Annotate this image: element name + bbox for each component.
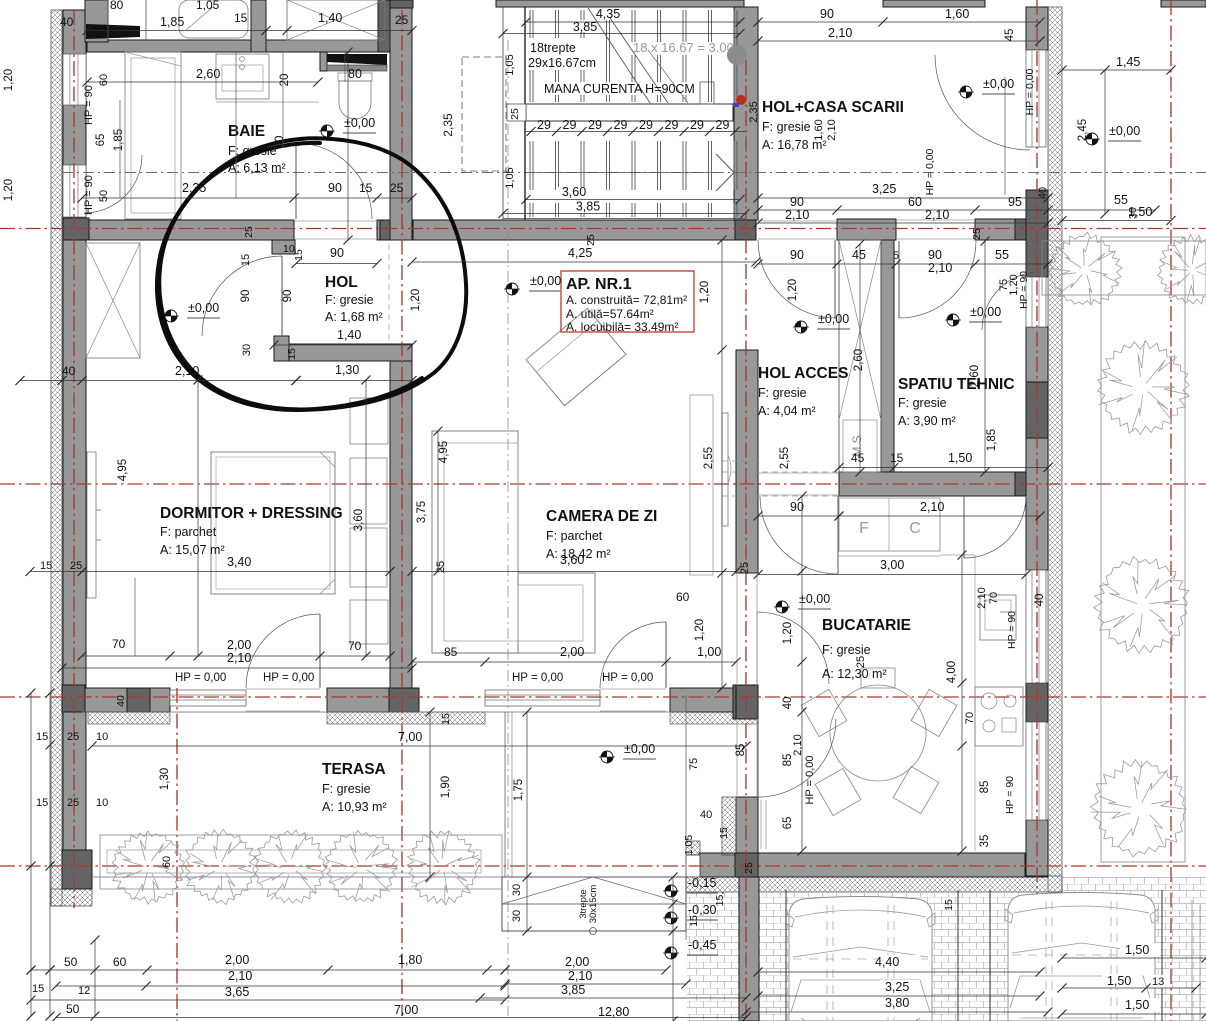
svg-text:40: 40: [115, 695, 127, 707]
svg-text:30x15cm: 30x15cm: [588, 885, 599, 924]
svg-text:2,10: 2,10: [828, 26, 852, 40]
svg-text:15: 15: [240, 254, 252, 266]
svg-text:60: 60: [676, 590, 690, 604]
svg-text:29: 29: [614, 118, 628, 132]
svg-text:-0,45: -0,45: [688, 938, 717, 952]
svg-text:1,85: 1,85: [986, 429, 998, 451]
svg-text:1,45: 1,45: [1116, 55, 1140, 69]
svg-text:2,35: 2,35: [441, 113, 455, 137]
svg-text:95: 95: [1008, 195, 1022, 209]
svg-text:70: 70: [988, 592, 1000, 604]
svg-text:HOL ACCES: HOL ACCES: [758, 365, 848, 382]
svg-text:29: 29: [639, 118, 653, 132]
svg-text:25: 25: [739, 562, 751, 574]
svg-text:25: 25: [971, 228, 983, 240]
svg-text:90: 90: [790, 195, 804, 209]
svg-text:30: 30: [1127, 207, 1139, 219]
svg-text:15: 15: [234, 11, 248, 25]
svg-text:±0,00: ±0,00: [799, 592, 830, 606]
svg-text:60: 60: [98, 74, 110, 86]
svg-text:90: 90: [282, 290, 294, 303]
svg-text:A. locuibilă= 33.49m²: A. locuibilă= 33.49m²: [566, 320, 678, 334]
svg-text:29: 29: [588, 118, 602, 132]
svg-text:±0,00: ±0,00: [1109, 124, 1140, 138]
svg-text:1,50: 1,50: [948, 451, 972, 465]
svg-text:-0,30: -0,30: [688, 903, 717, 917]
svg-text:15: 15: [943, 899, 955, 911]
svg-text:HP = 90: HP = 90: [1018, 271, 1030, 309]
svg-text:15: 15: [688, 915, 700, 927]
svg-text:A. utilă=57.64m²: A. utilă=57.64m²: [566, 307, 654, 321]
svg-text:7,00: 7,00: [398, 730, 422, 744]
svg-text:2,10: 2,10: [920, 500, 944, 514]
svg-text:7,00: 7,00: [394, 1003, 418, 1017]
svg-text:29x16.67cm: 29x16.67cm: [528, 56, 596, 70]
svg-text:13: 13: [1152, 976, 1164, 988]
svg-text:1,20: 1,20: [782, 622, 794, 644]
svg-text:HP = 0,00: HP = 0,00: [263, 672, 314, 684]
svg-text:40: 40: [60, 15, 74, 29]
svg-text:45: 45: [852, 248, 866, 262]
svg-text:15: 15: [359, 181, 373, 195]
svg-text:4,95: 4,95: [117, 459, 129, 481]
svg-text:3,60: 3,60: [562, 185, 586, 199]
svg-text:3,65: 3,65: [225, 985, 249, 999]
svg-text:40: 40: [1037, 187, 1049, 199]
svg-text:60: 60: [908, 195, 922, 209]
svg-text:HOL: HOL: [325, 274, 358, 291]
svg-text:3,60: 3,60: [353, 509, 365, 531]
svg-text:1,90: 1,90: [440, 776, 452, 798]
svg-text:30: 30: [511, 910, 523, 922]
svg-text:45: 45: [851, 451, 865, 465]
svg-text:HP = 0,00: HP = 0,00: [1024, 68, 1036, 115]
svg-text:F: gresie: F: gresie: [898, 396, 947, 410]
svg-text:18 x 16.67 = 3.00: 18 x 16.67 = 3.00: [633, 40, 734, 55]
svg-text:3,40: 3,40: [227, 555, 251, 569]
svg-text:CAMERA DE ZI: CAMERA DE ZI: [546, 508, 657, 525]
svg-text:3,85: 3,85: [573, 20, 597, 34]
svg-text:F: gresie: F: gresie: [822, 643, 871, 657]
svg-text:1,00: 1,00: [697, 645, 721, 659]
svg-text:2,60: 2,60: [196, 67, 220, 81]
svg-text:±0,00: ±0,00: [624, 742, 655, 756]
svg-text:29: 29: [665, 118, 679, 132]
svg-text:HP = 90: HP = 90: [1004, 776, 1016, 814]
svg-text:HP = 0,00: HP = 0,00: [175, 672, 226, 684]
svg-text:40: 40: [782, 697, 794, 710]
svg-text:TERASA: TERASA: [322, 761, 386, 778]
svg-text:90: 90: [240, 290, 252, 303]
svg-text:1,85: 1,85: [160, 15, 184, 29]
svg-text:A: 1,68 m²: A: 1,68 m²: [325, 310, 383, 324]
svg-text:60: 60: [161, 856, 173, 868]
svg-text:40: 40: [700, 809, 712, 821]
svg-text:12: 12: [78, 985, 90, 997]
svg-text:90: 90: [328, 181, 342, 195]
svg-text:1,20: 1,20: [699, 281, 711, 303]
svg-text:25: 25: [743, 862, 755, 874]
svg-text:70: 70: [348, 639, 362, 653]
svg-text:4,25: 4,25: [568, 246, 592, 260]
svg-text:35: 35: [979, 835, 991, 848]
svg-text:90: 90: [928, 248, 942, 262]
svg-text:85: 85: [444, 645, 458, 659]
svg-text:15: 15: [440, 713, 452, 725]
svg-text:25: 25: [509, 108, 521, 120]
svg-text:40: 40: [62, 364, 76, 378]
svg-text:2,45: 2,45: [1077, 119, 1089, 141]
svg-text:2,00: 2,00: [565, 955, 589, 969]
svg-text:29: 29: [563, 118, 577, 132]
svg-text:85: 85: [979, 781, 991, 794]
svg-text:25: 25: [390, 181, 404, 195]
svg-text:F: gresie: F: gresie: [758, 386, 807, 400]
svg-text:5: 5: [893, 250, 899, 262]
svg-text:1,20: 1,20: [787, 279, 799, 301]
svg-text:±0,00: ±0,00: [530, 274, 561, 288]
svg-text:55: 55: [1114, 193, 1128, 207]
svg-text:15: 15: [36, 731, 48, 743]
svg-text:DORMITOR + DRESSING: DORMITOR + DRESSING: [160, 505, 343, 522]
svg-text:2,00: 2,00: [225, 953, 249, 967]
svg-text:1,60: 1,60: [945, 7, 969, 21]
svg-text:65: 65: [95, 134, 107, 147]
svg-text:15: 15: [890, 451, 904, 465]
svg-text:1,40: 1,40: [337, 328, 361, 342]
svg-text:1,50: 1,50: [1125, 998, 1149, 1012]
svg-text:85: 85: [735, 744, 747, 757]
svg-text:F: gresie: F: gresie: [762, 120, 811, 134]
svg-text:2,55: 2,55: [703, 447, 715, 469]
svg-text:25: 25: [855, 656, 867, 668]
svg-text:15: 15: [718, 827, 730, 839]
svg-text:-0,15: -0,15: [688, 876, 717, 890]
svg-text:20: 20: [279, 74, 291, 87]
svg-text:MANA CURENTA H=90CM: MANA CURENTA H=90CM: [544, 82, 695, 96]
svg-text:HP = 90: HP = 90: [83, 175, 95, 215]
svg-text:2,60: 2,60: [969, 365, 981, 387]
svg-text:30: 30: [241, 344, 253, 356]
svg-text:29: 29: [690, 118, 704, 132]
svg-text:1,40: 1,40: [318, 11, 342, 25]
svg-text:50: 50: [66, 1002, 80, 1016]
svg-text:1,50: 1,50: [1107, 974, 1131, 988]
svg-text:50: 50: [98, 190, 110, 202]
svg-text:4,95: 4,95: [438, 441, 450, 463]
svg-text:2,10: 2,10: [928, 261, 952, 275]
svg-text:BAIE: BAIE: [228, 123, 265, 140]
svg-text:C: C: [909, 520, 921, 537]
svg-text:15: 15: [36, 797, 48, 809]
svg-text:1,20: 1,20: [3, 179, 15, 201]
svg-text:1,85: 1,85: [113, 129, 125, 151]
svg-text:1,20: 1,20: [694, 619, 706, 641]
svg-text:60: 60: [113, 955, 127, 969]
svg-text:HP = 90: HP = 90: [1006, 611, 1018, 649]
svg-text:F: parchet: F: parchet: [160, 525, 217, 539]
svg-text:10: 10: [96, 731, 108, 743]
svg-text:±0,00: ±0,00: [344, 116, 375, 130]
svg-text:2,10: 2,10: [568, 969, 592, 983]
svg-text:4,35: 4,35: [596, 7, 620, 21]
svg-text:25: 25: [585, 234, 597, 246]
svg-text:HOL+CASA SCARII: HOL+CASA SCARII: [762, 99, 904, 116]
svg-text:1,60: 1,60: [813, 119, 825, 140]
svg-text:2,00: 2,00: [227, 638, 251, 652]
svg-text:2,10: 2,10: [175, 364, 199, 378]
svg-text:3,80: 3,80: [885, 996, 909, 1010]
svg-text:80: 80: [110, 0, 124, 12]
svg-text:18trepte: 18trepte: [530, 41, 576, 55]
svg-text:25: 25: [395, 13, 409, 27]
svg-text:A: 3,90 m²: A: 3,90 m²: [898, 414, 956, 428]
svg-text:BUCATARIE: BUCATARIE: [822, 617, 911, 634]
svg-text:2,60: 2,60: [853, 349, 865, 371]
svg-text:15: 15: [32, 983, 44, 995]
svg-text:40: 40: [1034, 594, 1046, 607]
svg-text:90: 90: [790, 248, 804, 262]
svg-text:1,80: 1,80: [398, 953, 422, 967]
svg-text:AP. NR.1: AP. NR.1: [566, 276, 632, 293]
svg-text:12,80: 12,80: [598, 1005, 629, 1019]
svg-text:29: 29: [716, 118, 730, 132]
svg-text:70: 70: [964, 712, 976, 724]
svg-text:1,75: 1,75: [513, 779, 525, 801]
svg-text:1,30: 1,30: [335, 363, 359, 377]
svg-text:25: 25: [67, 731, 79, 743]
svg-text:4,40: 4,40: [875, 955, 899, 969]
svg-text:A: 6,13 m²: A: 6,13 m²: [228, 161, 286, 175]
svg-text:F: F: [859, 520, 869, 537]
svg-text:SPATIU TEHNIC: SPATIU TEHNIC: [898, 376, 1015, 393]
svg-text:2,10: 2,10: [826, 119, 838, 140]
svg-text:70: 70: [112, 637, 126, 651]
svg-text:90: 90: [330, 246, 344, 260]
svg-text:A: 10,93 m²: A: 10,93 m²: [322, 800, 387, 814]
svg-text:1,20: 1,20: [3, 69, 15, 91]
svg-text:15: 15: [40, 560, 52, 572]
svg-text:F: parchet: F: parchet: [546, 529, 603, 543]
svg-text:60: 60: [274, 136, 286, 149]
svg-text:10: 10: [96, 797, 108, 809]
svg-text:55: 55: [995, 248, 1009, 262]
svg-text:50: 50: [64, 955, 78, 969]
svg-text:2,10: 2,10: [227, 651, 251, 665]
svg-text:30: 30: [511, 884, 523, 896]
svg-text:1,20: 1,20: [410, 289, 422, 311]
svg-text:25: 25: [67, 797, 79, 809]
svg-text:15: 15: [286, 348, 298, 360]
svg-text:±0,00: ±0,00: [983, 77, 1014, 91]
svg-text:65: 65: [782, 817, 794, 830]
svg-text:3,25: 3,25: [885, 980, 909, 994]
svg-text:HP = 0,00: HP = 0,00: [512, 672, 563, 684]
svg-text:4,00: 4,00: [946, 661, 958, 683]
svg-text:A: 15,07 m²: A: 15,07 m²: [160, 543, 225, 557]
svg-text:1,05: 1,05: [196, 0, 220, 12]
svg-text:±0,00: ±0,00: [188, 301, 219, 315]
svg-text:HP = 90: HP = 90: [83, 85, 95, 125]
svg-text:29: 29: [537, 118, 551, 132]
svg-text:1,50: 1,50: [1125, 943, 1149, 957]
svg-text:A: 4,04 m²: A: 4,04 m²: [758, 404, 816, 418]
svg-text:15,: 15,: [714, 892, 726, 907]
svg-text:15: 15: [293, 249, 305, 261]
svg-text:F: gresie: F: gresie: [325, 293, 374, 307]
svg-text:1,05: 1,05: [683, 835, 695, 856]
svg-text:2,10: 2,10: [228, 969, 252, 983]
svg-text:3,25: 3,25: [872, 182, 896, 196]
svg-text:2,10: 2,10: [976, 587, 988, 608]
svg-text:80: 80: [348, 67, 362, 81]
svg-text:F: gresie: F: gresie: [228, 144, 277, 158]
svg-text:75: 75: [688, 758, 700, 770]
svg-text:F: gresie: F: gresie: [322, 782, 371, 796]
svg-text:3,00: 3,00: [880, 558, 904, 572]
svg-text:3,85: 3,85: [576, 200, 600, 214]
svg-text:HP = 0,00: HP = 0,00: [924, 148, 936, 195]
svg-text:25: 25: [243, 226, 255, 238]
svg-text:3,60: 3,60: [560, 553, 584, 567]
svg-text:A. construită= 72,81m²: A. construită= 72,81m²: [566, 293, 687, 307]
svg-text:HP = 0,00: HP = 0,00: [804, 755, 816, 804]
svg-text:HP = 0,00: HP = 0,00: [602, 672, 653, 684]
svg-text:25: 25: [70, 560, 82, 572]
svg-text:3,75: 3,75: [416, 501, 428, 523]
svg-text:2,55: 2,55: [779, 447, 791, 469]
svg-text:±0,00: ±0,00: [818, 312, 849, 326]
svg-text:2,00: 2,00: [560, 645, 584, 659]
svg-text:±0,00: ±0,00: [970, 305, 1001, 319]
svg-text:45: 45: [1004, 29, 1016, 42]
svg-text:90: 90: [820, 7, 834, 21]
svg-text:2,35: 2,35: [182, 181, 206, 195]
svg-text:3,85: 3,85: [561, 983, 585, 997]
svg-text:2,35: 2,35: [748, 101, 760, 122]
svg-text:1,30: 1,30: [159, 768, 171, 790]
